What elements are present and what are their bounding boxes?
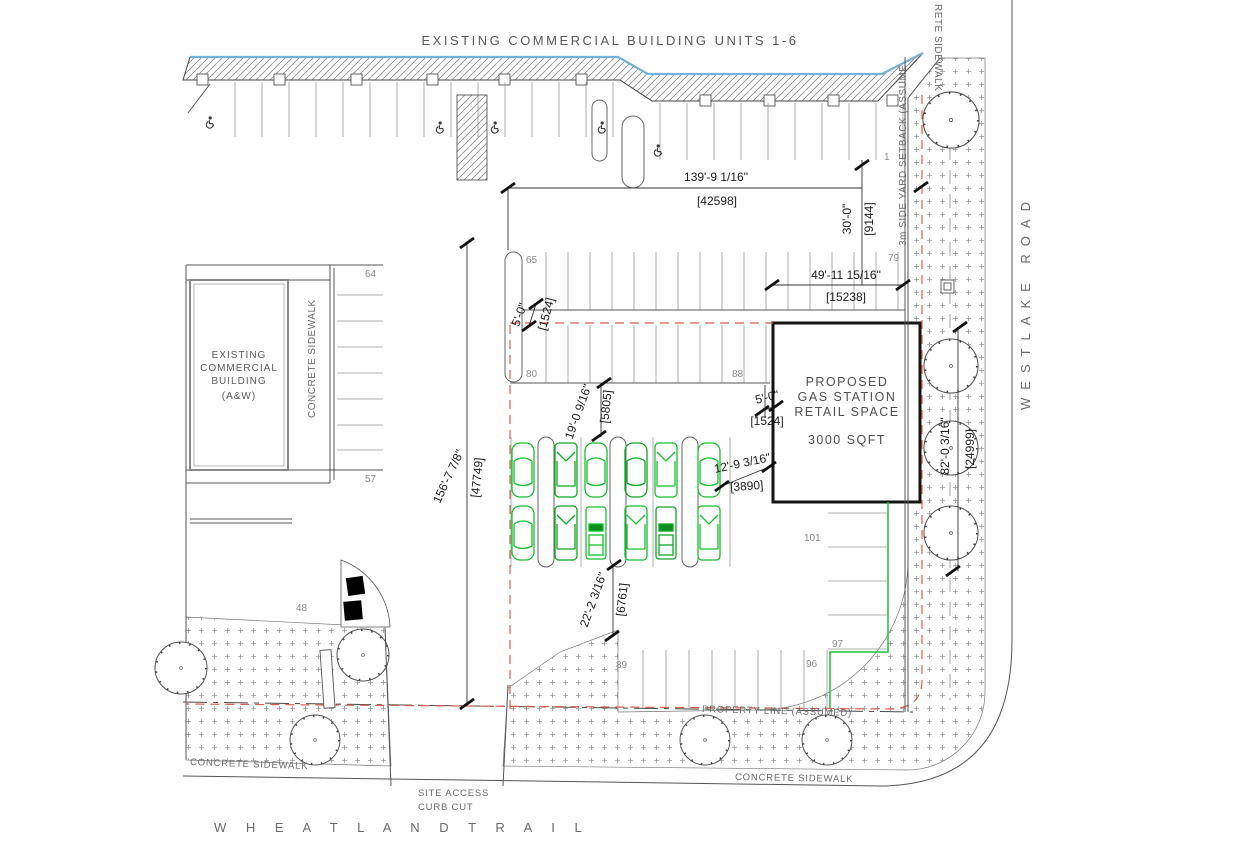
site-plan-drawing: EXISTING COMMERCIAL BUILDING UNITS 1-6 E… [0, 0, 1250, 850]
sidewalk-bottom-right-label: CONCRETE SIDEWALK [735, 772, 853, 785]
tree-icon [924, 339, 978, 393]
site-access-line2: CURB CUT [418, 802, 473, 813]
tree-icon [337, 629, 389, 681]
handicap-icon [491, 121, 498, 133]
car-icon [512, 506, 534, 560]
num-65: 65 [526, 255, 538, 266]
dim-5b-mm: [1524] [750, 414, 783, 428]
handicap-icon [436, 121, 443, 133]
hatched-no-parking-stall [457, 95, 487, 180]
num-79: 79 [888, 253, 900, 264]
dim-19-ft: 19'-0 9/16" [562, 382, 595, 441]
dim-19-mm: [5805] [597, 389, 614, 424]
tree-icon [680, 715, 730, 765]
car-icon [625, 506, 647, 560]
catch-basin-icon [941, 280, 954, 293]
units-building-hatched-band [183, 53, 923, 101]
aw-line1: EXISTING [212, 350, 267, 361]
car-icon [512, 443, 534, 497]
site-plan-page: EXISTING COMMERCIAL BUILDING UNITS 1-6 E… [0, 0, 1250, 850]
dim-30-mm: [9144] [862, 202, 876, 235]
aw-line2: COMMERCIAL [200, 363, 278, 374]
sign-block [346, 576, 365, 596]
tree-icon [155, 642, 207, 694]
dim-12-mm: [3890] [730, 478, 764, 494]
wheatland-trail-label: W H E A T L A N D T R A I L [214, 820, 590, 835]
westlake-road-label: WESTLAKE ROAD [1018, 194, 1033, 410]
units-building [183, 53, 923, 113]
dim-82-mm: [24999] [963, 429, 977, 469]
proposed-building-label: PROPOSED GAS STATION RETAIL SPACE 3000 S… [794, 375, 899, 447]
tree-icon [290, 715, 340, 765]
dim-82-ft: 82'-0 3/16" [938, 417, 952, 474]
car-icon [656, 507, 676, 559]
dim-49-mm: [15238] [826, 290, 866, 304]
tree-icon [923, 92, 979, 148]
num-80: 80 [526, 369, 538, 380]
dim-22-ft: 22'-2 3/16" [577, 570, 610, 629]
dim-139-mm: [42598] [697, 194, 737, 208]
site-access-line1: SITE ACCESS [418, 788, 489, 799]
aw-line3: BUILDING [211, 376, 266, 387]
num-96: 96 [806, 659, 818, 670]
tree-icon [802, 715, 852, 765]
aw-building [190, 280, 288, 470]
num-89: 89 [616, 660, 628, 671]
site-access-driveway [385, 628, 508, 786]
handicap-icon [206, 116, 213, 128]
dim-156-mm: [47749] [468, 457, 486, 498]
car-icon [655, 443, 677, 497]
num-64: 64 [365, 269, 377, 280]
handicap-icon [654, 144, 661, 156]
num-1: 1 [884, 152, 890, 163]
car-icon [698, 506, 720, 560]
dim-30-ft: 30'-0" [840, 204, 854, 235]
east-stalls [828, 513, 887, 649]
proposed-line2: GAS STATION [798, 390, 897, 404]
proposed-area: 3000 SQFT [808, 433, 886, 447]
aw-parking-stalls [337, 295, 383, 450]
car-icon [586, 507, 606, 559]
num-101: 101 [804, 533, 821, 544]
num-48: 48 [296, 603, 308, 614]
dim-139-ft: 139'-9 1/16" [684, 170, 748, 184]
dim-49-ft: 49'-11 15/16" [811, 268, 881, 282]
num-57: 57 [365, 474, 377, 485]
sidewalk-left-label: CONCRETE SIDEWALK [307, 299, 318, 418]
num-97: 97 [832, 639, 844, 650]
units-building-label: EXISTING COMMERCIAL BUILDING UNITS 1-6 [422, 33, 799, 48]
sidewalk-right-label: RETE SIDEWALK [932, 4, 943, 91]
sign-block [343, 600, 363, 620]
car-icon [555, 443, 577, 497]
dim-156-ft: 156'-7 7/8" [430, 447, 467, 505]
dim-22-mm: [6761] [613, 582, 630, 617]
tree-icon [924, 506, 978, 560]
proposed-line3: RETAIL SPACE [794, 405, 899, 419]
car-icon [555, 506, 577, 560]
num-88: 88 [732, 369, 744, 380]
car-icon [625, 443, 647, 497]
aw-line4: (A&W) [222, 391, 256, 402]
south-stalls [643, 650, 827, 708]
car-icon [585, 443, 607, 497]
proposed-line1: PROPOSED [806, 375, 889, 389]
site-access-label: SITE ACCESS CURB CUT [418, 788, 489, 813]
parking-islands-top [592, 100, 644, 188]
side-yard-setback-label: 3m SIDE YARD SETBACK (ASSUME [898, 65, 909, 246]
